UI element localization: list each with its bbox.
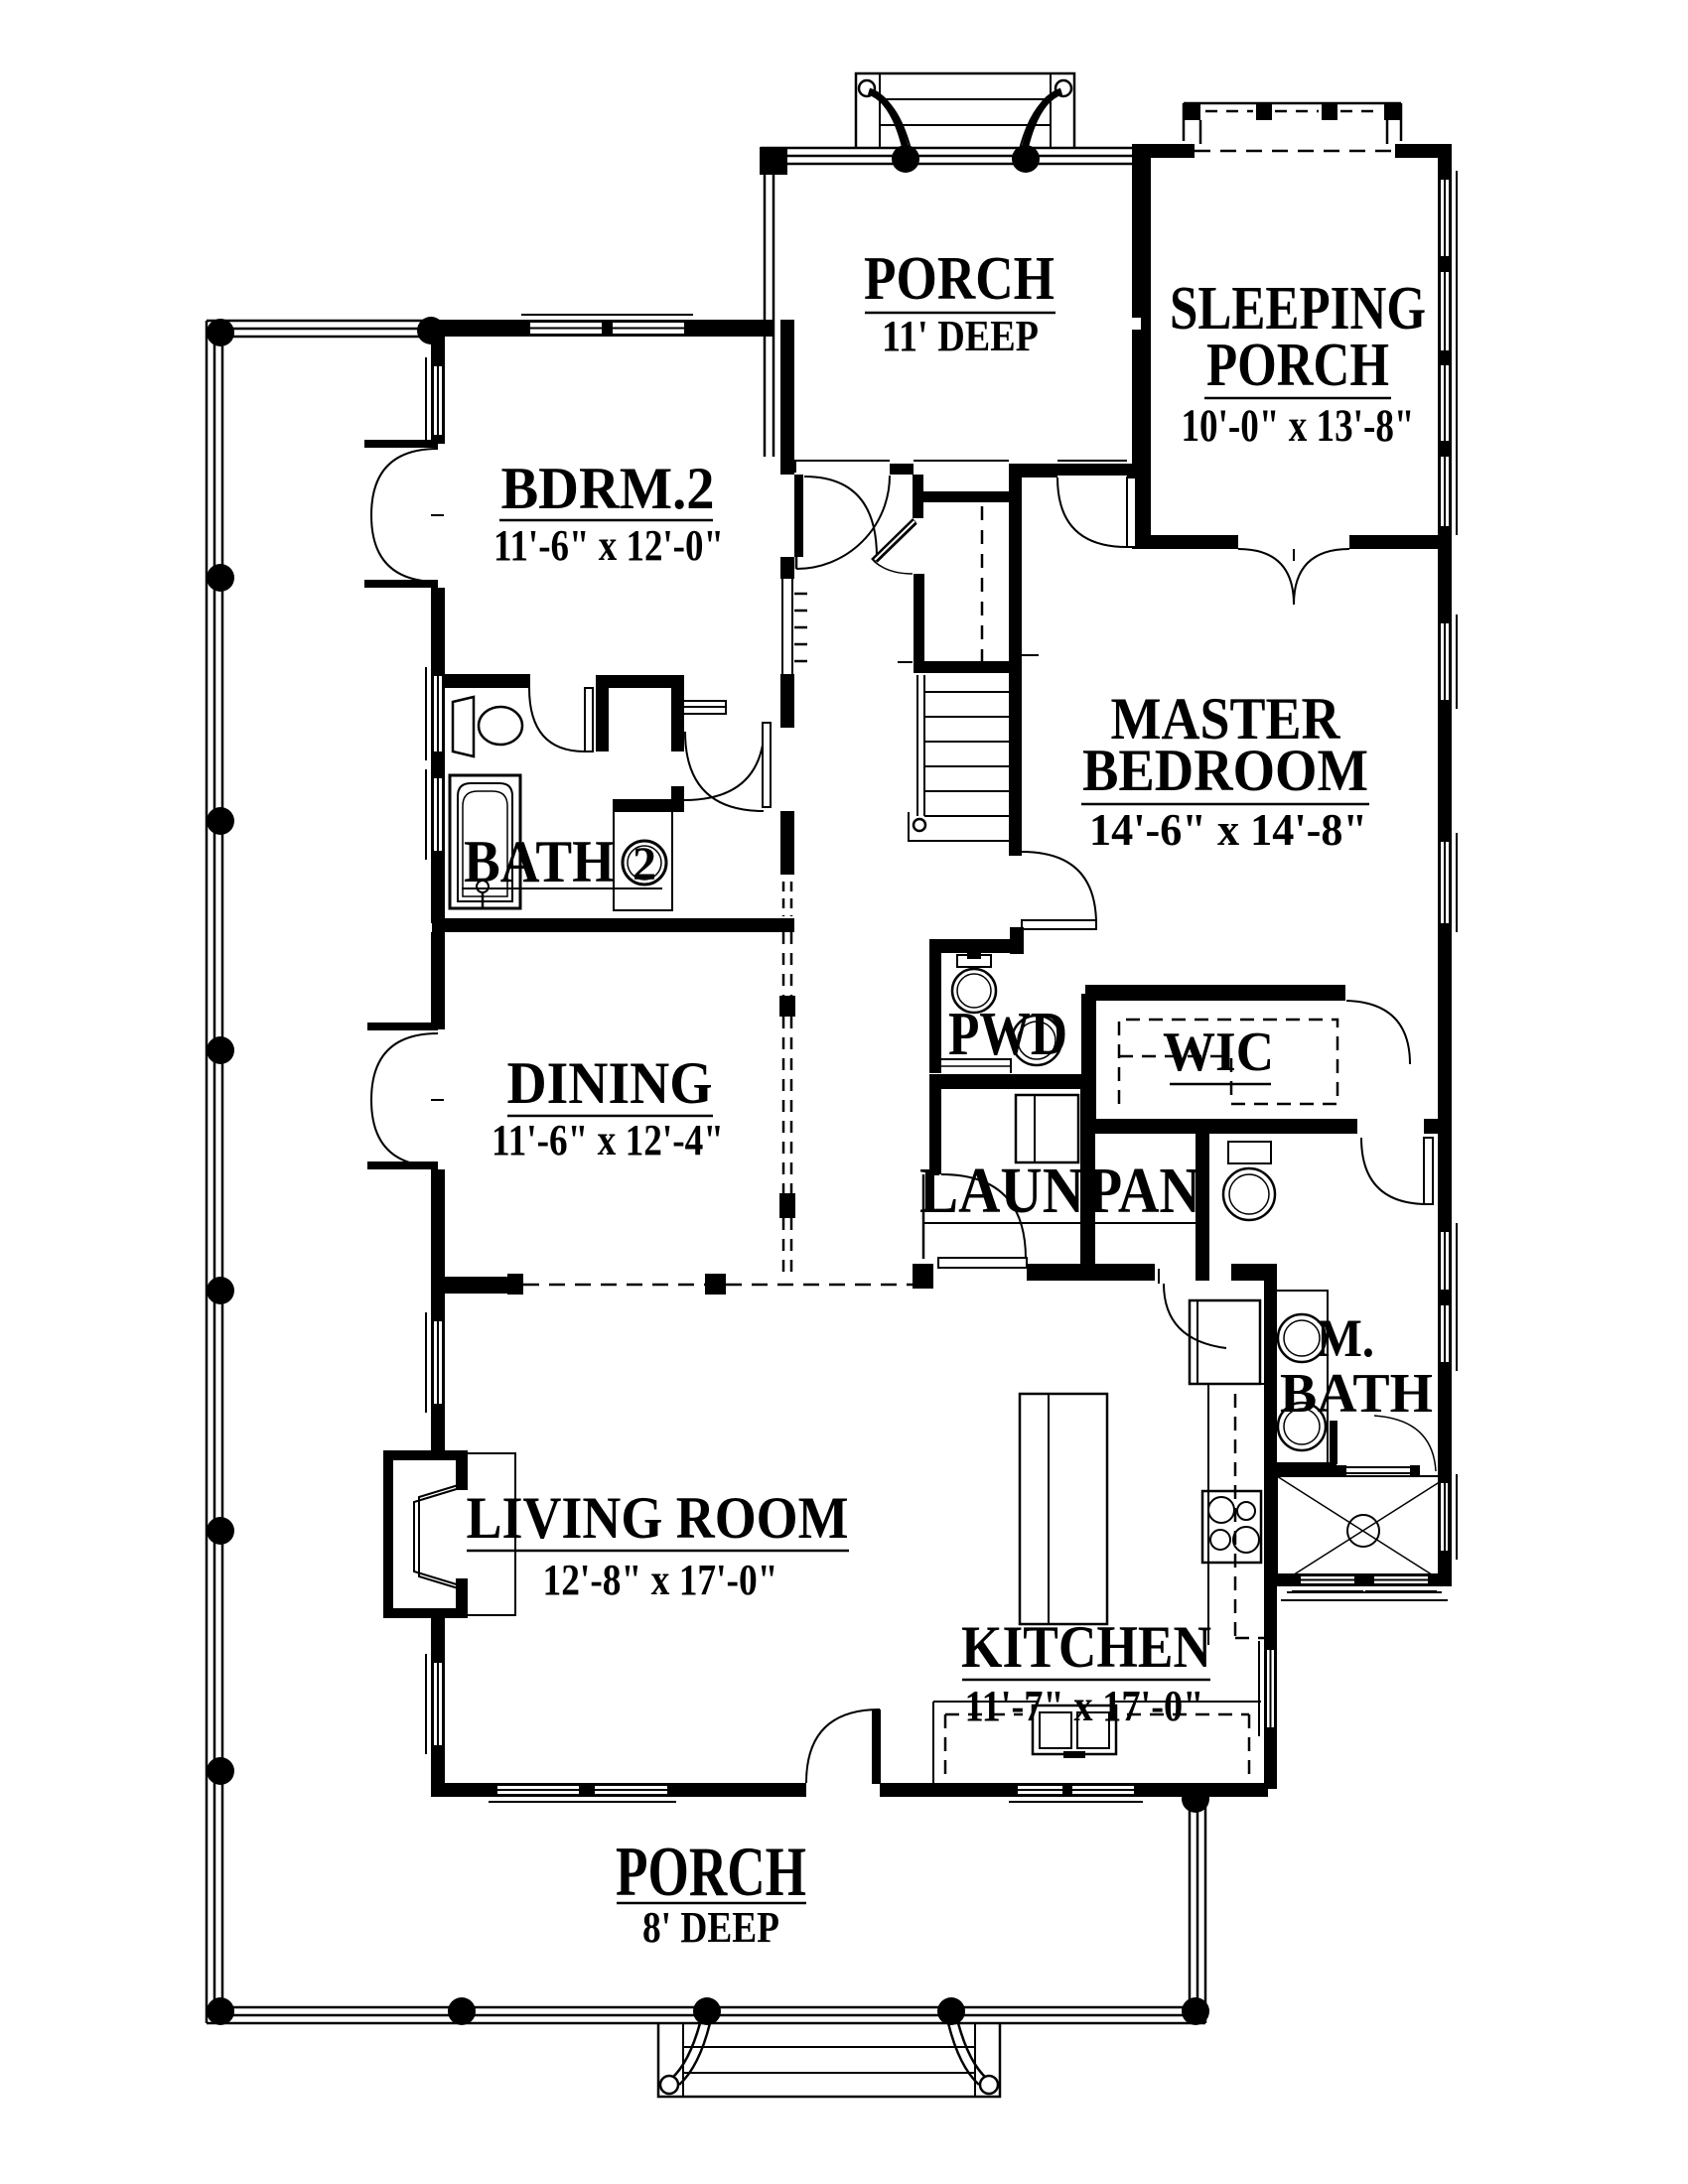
svg-text:M.: M. — [1317, 1308, 1374, 1368]
svg-text:8' DEEP: 8' DEEP — [642, 1903, 779, 1952]
svg-text:WIC: WIC — [1163, 1022, 1274, 1083]
svg-text:PORCH: PORCH — [1206, 332, 1389, 399]
svg-text:14'-6" x 14'-8": 14'-6" x 14'-8" — [1089, 805, 1367, 855]
svg-text:11'-6" x 12'-0": 11'-6" x 12'-0" — [493, 521, 724, 570]
svg-text:DINING: DINING — [507, 1050, 713, 1116]
svg-text:KITCHEN: KITCHEN — [961, 1614, 1211, 1680]
svg-text:10'-0" x 13'-8": 10'-0" x 13'-8" — [1182, 400, 1415, 452]
svg-text:BEDROOM: BEDROOM — [1082, 738, 1368, 803]
svg-text:LIVING ROOM: LIVING ROOM — [467, 1485, 849, 1551]
svg-text:LAUN: LAUN — [919, 1155, 1084, 1227]
svg-text:11'-6" x 12'-4": 11'-6" x 12'-4" — [492, 1116, 724, 1164]
svg-text:BATH: BATH — [1280, 1363, 1433, 1425]
svg-text:PAN: PAN — [1087, 1155, 1200, 1227]
svg-text:12'-8" x 17'-0": 12'-8" x 17'-0" — [543, 1556, 778, 1604]
svg-text:PWD: PWD — [948, 1001, 1067, 1068]
svg-text:PORCH: PORCH — [616, 1834, 806, 1911]
svg-text:11' DEEP: 11' DEEP — [882, 312, 1039, 360]
svg-text:BDRM.2: BDRM.2 — [501, 456, 715, 521]
svg-text:11'-7" x 17'-0": 11'-7" x 17'-0" — [965, 1682, 1204, 1730]
svg-text:BATH: BATH — [464, 829, 615, 894]
svg-text:PORCH: PORCH — [864, 245, 1055, 313]
svg-text:2: 2 — [633, 838, 656, 890]
